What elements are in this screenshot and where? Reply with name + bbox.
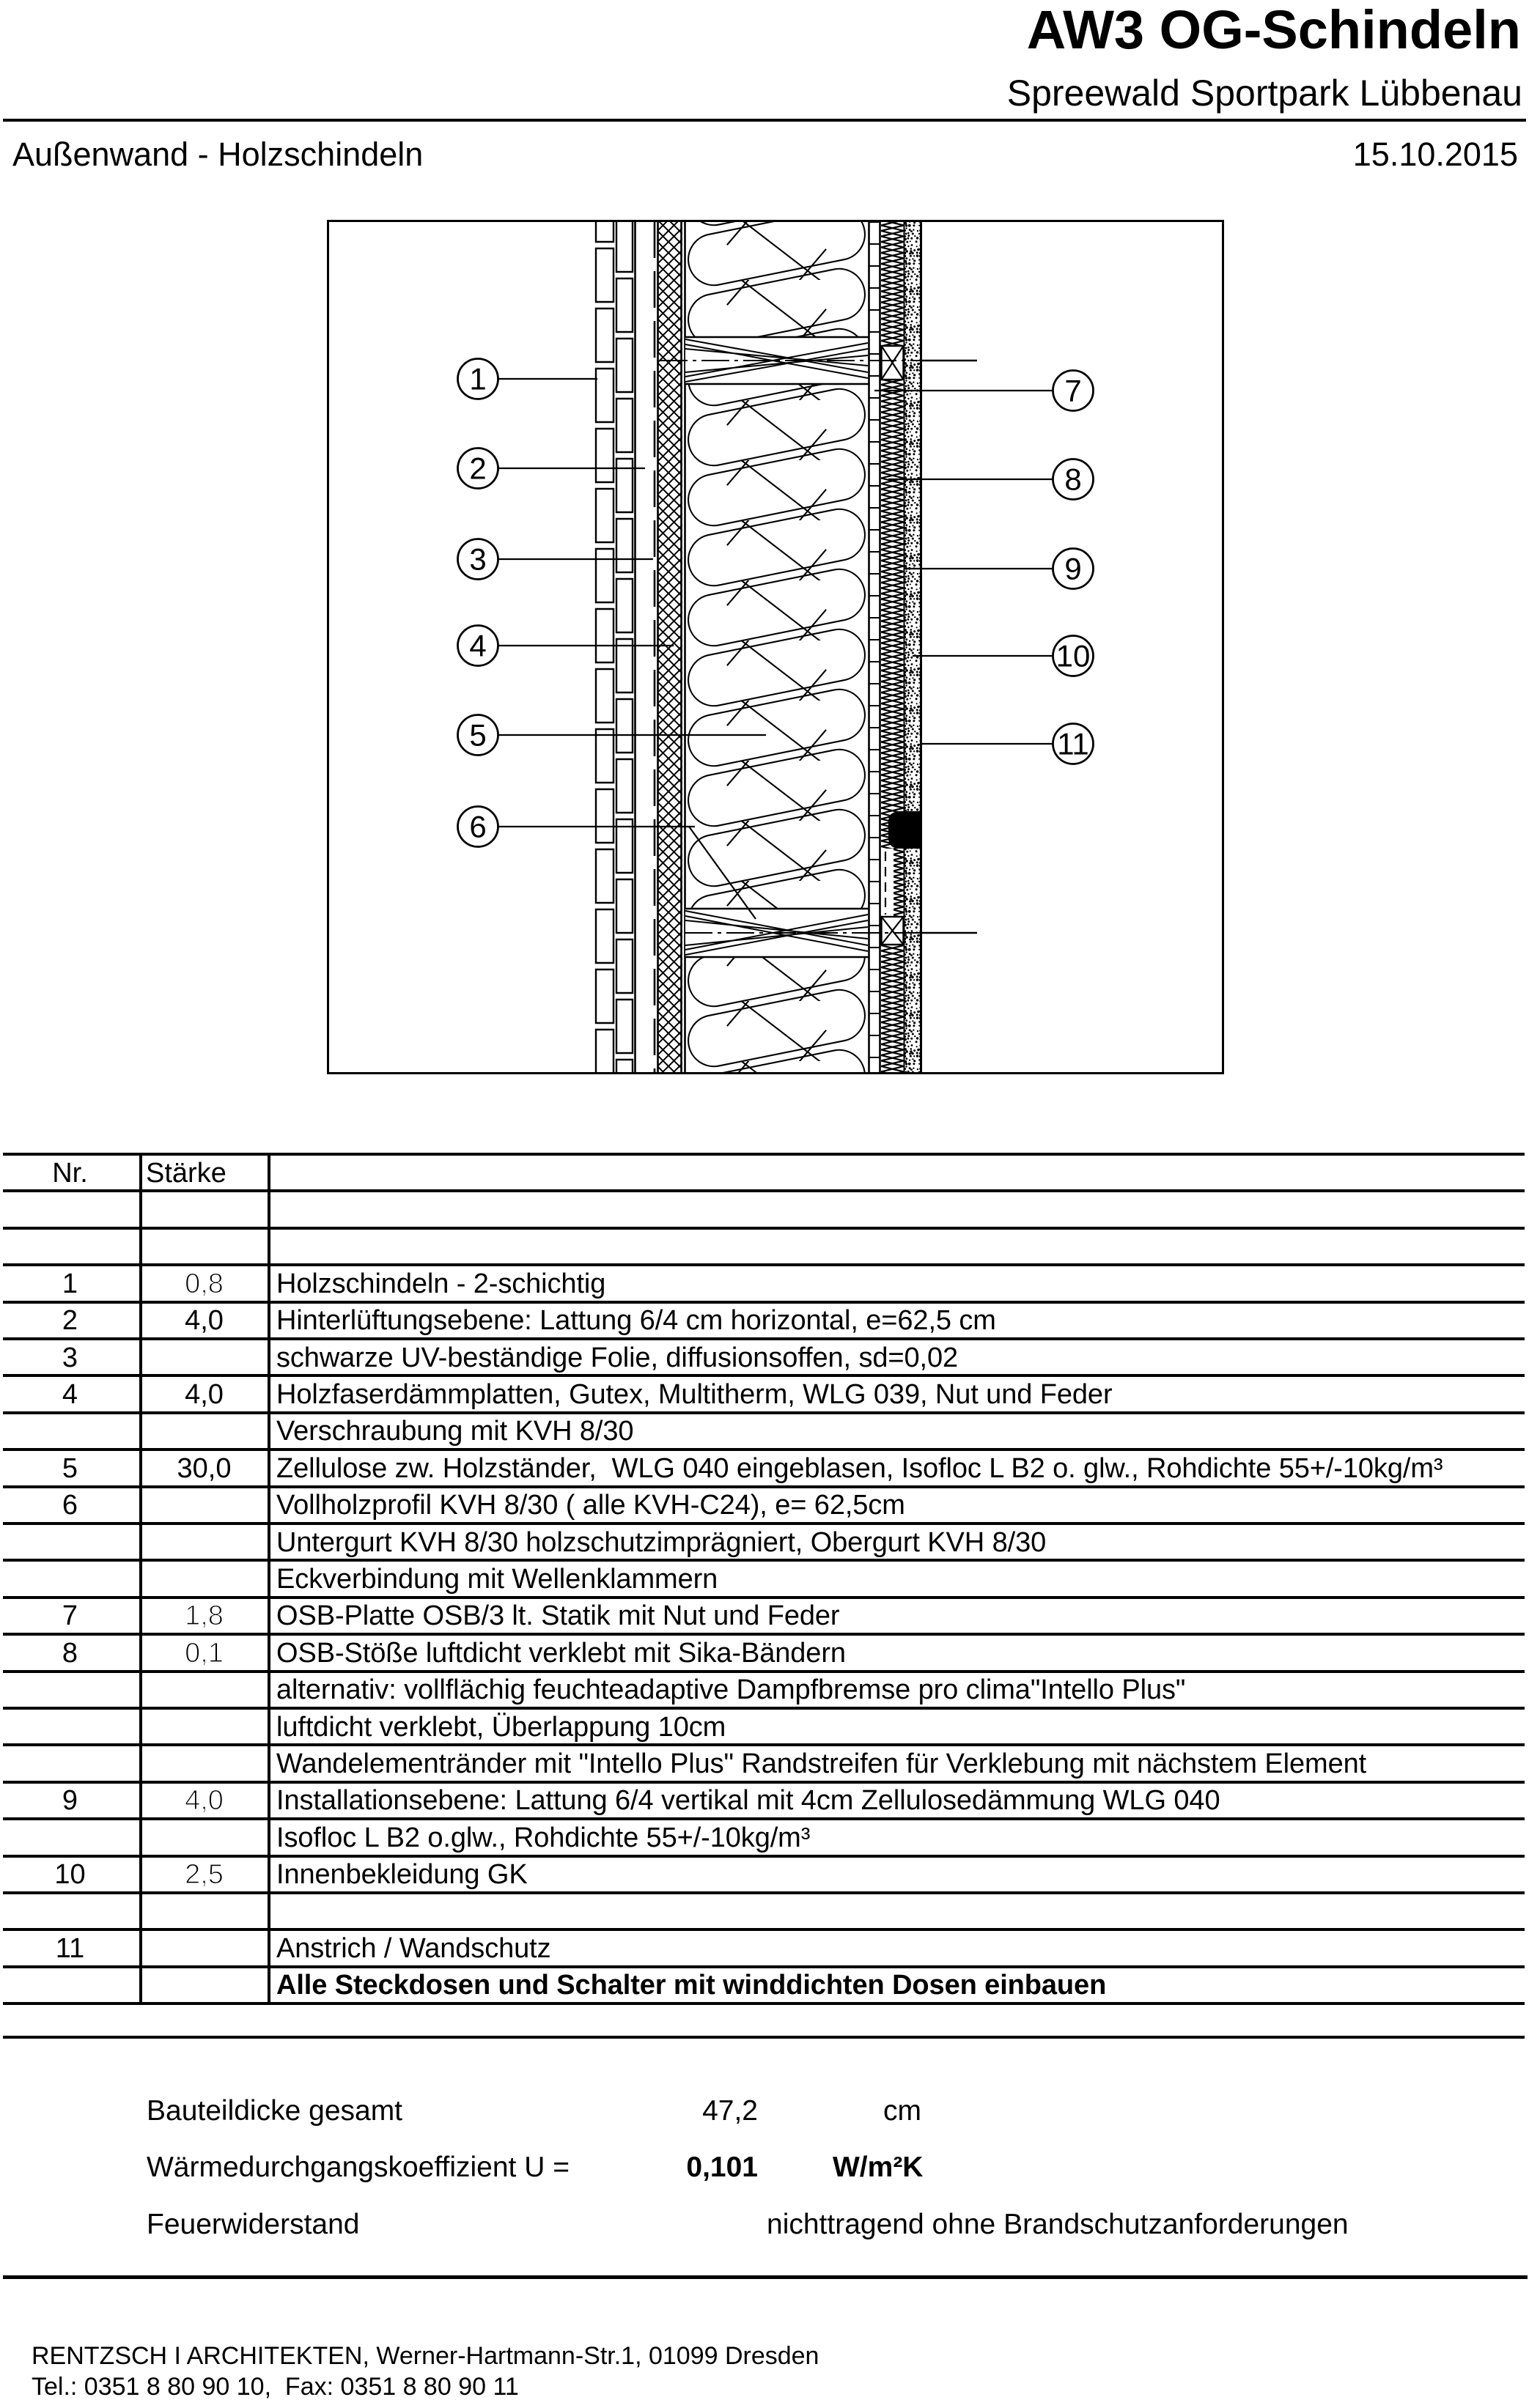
svg-text:9: 9: [1064, 552, 1081, 586]
svg-text:2: 2: [469, 451, 486, 486]
svg-text:1: 1: [469, 362, 486, 396]
svg-text:11: 11: [1057, 727, 1089, 761]
svg-text:8: 8: [1064, 462, 1081, 497]
svg-text:7: 7: [1064, 374, 1081, 408]
svg-text:6: 6: [469, 810, 486, 844]
svg-text:10: 10: [1056, 639, 1091, 673]
svg-text:4: 4: [469, 629, 486, 663]
svg-text:3: 3: [469, 542, 486, 577]
svg-text:5: 5: [469, 718, 486, 753]
